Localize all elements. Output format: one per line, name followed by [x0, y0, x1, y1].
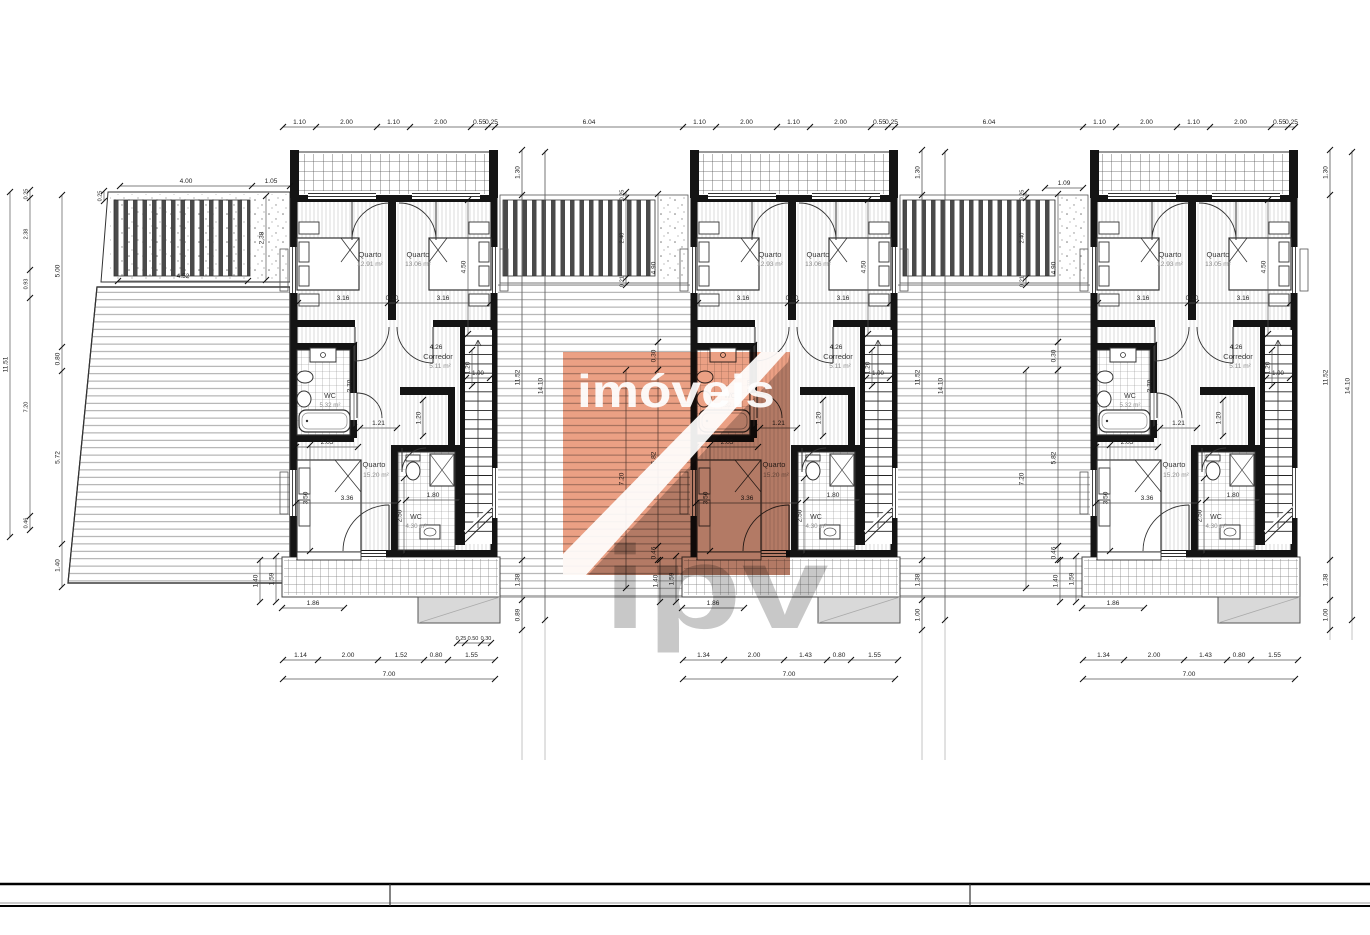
svg-text:1.59: 1.59 — [269, 572, 276, 585]
svg-text:1.86: 1.86 — [307, 600, 320, 607]
svg-text:1.38: 1.38 — [1323, 573, 1330, 586]
svg-text:2.05: 2.05 — [1121, 439, 1134, 446]
svg-text:1.10: 1.10 — [387, 119, 400, 126]
svg-text:2.50: 2.50 — [1197, 509, 1204, 522]
svg-text:1.10: 1.10 — [693, 119, 706, 126]
svg-text:1.00: 1.00 — [872, 371, 884, 377]
svg-text:Quarto: Quarto — [359, 250, 382, 259]
svg-text:0.50: 0.50 — [468, 636, 479, 642]
svg-text:2.38: 2.38 — [259, 231, 266, 244]
svg-text:Quarto: Quarto — [1159, 250, 1182, 259]
svg-text:0.25: 0.25 — [1285, 119, 1298, 126]
svg-text:4.26: 4.26 — [430, 344, 443, 351]
gap-strip-2 — [894, 195, 1094, 597]
svg-text:2.50: 2.50 — [397, 509, 404, 522]
svg-text:4.90: 4.90 — [1051, 261, 1058, 274]
svg-text:0.25: 0.25 — [24, 189, 30, 200]
svg-text:1.10: 1.10 — [1093, 119, 1106, 126]
svg-text:14.10: 14.10 — [538, 377, 545, 394]
svg-text:15.20 m²: 15.20 m² — [1163, 472, 1189, 479]
svg-text:1.30: 1.30 — [515, 166, 522, 179]
svg-text:0.10: 0.10 — [786, 295, 799, 302]
svg-text:4.30 m²: 4.30 m² — [406, 523, 427, 530]
svg-text:3.16: 3.16 — [337, 295, 350, 302]
svg-text:1.20: 1.20 — [816, 411, 823, 424]
svg-text:1.00: 1.00 — [472, 371, 484, 377]
svg-text:2.00: 2.00 — [740, 119, 753, 126]
svg-text:2.00: 2.00 — [834, 119, 847, 126]
svg-text:14.10: 14.10 — [938, 377, 945, 394]
svg-text:2.70: 2.70 — [347, 379, 354, 392]
svg-text:7.00: 7.00 — [1183, 671, 1196, 678]
svg-text:11.52: 11.52 — [515, 369, 522, 385]
unit-3: Quarto12.93 m²Quarto13.05 m²4.26Corredor… — [1080, 150, 1308, 623]
svg-text:1.55: 1.55 — [1268, 652, 1281, 659]
svg-text:0.30: 0.30 — [481, 636, 492, 642]
svg-text:13.06 m²: 13.06 m² — [805, 261, 831, 268]
watermark-logo: imóveisipv — [563, 352, 829, 654]
svg-text:3.36: 3.36 — [1141, 495, 1154, 502]
svg-text:2.00: 2.00 — [434, 119, 447, 126]
svg-text:3.16: 3.16 — [837, 295, 850, 302]
svg-text:Corredor: Corredor — [823, 352, 853, 361]
svg-text:11.52: 11.52 — [1323, 369, 1330, 385]
svg-text:0.10: 0.10 — [386, 295, 399, 302]
svg-text:2.00: 2.00 — [342, 652, 355, 659]
svg-text:3.36: 3.36 — [341, 495, 354, 502]
svg-text:1.55: 1.55 — [868, 652, 881, 659]
svg-text:1.10: 1.10 — [293, 119, 306, 126]
svg-text:1.09: 1.09 — [1058, 180, 1071, 187]
svg-text:imóveis: imóveis — [577, 365, 775, 417]
svg-text:Quarto: Quarto — [363, 460, 386, 469]
svg-text:1.40: 1.40 — [253, 574, 260, 587]
svg-text:11.51: 11.51 — [3, 356, 10, 372]
svg-text:3.50: 3.50 — [1103, 491, 1110, 504]
svg-text:0.25: 0.25 — [456, 636, 467, 642]
svg-text:2.05: 2.05 — [321, 439, 334, 446]
svg-text:12.93 m²: 12.93 m² — [1157, 261, 1183, 268]
svg-text:2.00: 2.00 — [1234, 119, 1247, 126]
svg-text:12.93 m²: 12.93 m² — [757, 261, 783, 268]
svg-text:WC: WC — [1210, 514, 1222, 521]
svg-text:1.52: 1.52 — [395, 652, 408, 659]
svg-text:2.50: 2.50 — [797, 509, 804, 522]
svg-text:1.80: 1.80 — [827, 492, 840, 499]
svg-text:5.32 m²: 5.32 m² — [320, 402, 341, 409]
svg-text:0.46: 0.46 — [1051, 546, 1058, 559]
svg-text:13.06 m²: 13.06 m² — [405, 261, 431, 268]
svg-text:0.93: 0.93 — [24, 279, 30, 290]
svg-text:3.16: 3.16 — [1137, 295, 1150, 302]
svg-text:7.00: 7.00 — [383, 671, 396, 678]
svg-text:11.52: 11.52 — [915, 369, 922, 385]
svg-text:0.80: 0.80 — [1233, 652, 1246, 659]
svg-text:5.82: 5.82 — [1051, 451, 1058, 464]
svg-text:Quarto: Quarto — [759, 250, 782, 259]
svg-text:0.25: 0.25 — [485, 119, 498, 126]
svg-text:0.80: 0.80 — [430, 652, 443, 659]
svg-text:5.72: 5.72 — [55, 451, 62, 464]
svg-text:1.21: 1.21 — [372, 420, 385, 427]
svg-text:5.00: 5.00 — [55, 264, 62, 277]
svg-text:1.10: 1.10 — [1187, 119, 1200, 126]
svg-text:1.00: 1.00 — [1272, 371, 1284, 377]
svg-text:4.30 m²: 4.30 m² — [1206, 523, 1227, 530]
svg-text:1.55: 1.55 — [465, 652, 478, 659]
svg-text:Quarto: Quarto — [807, 250, 830, 259]
svg-text:12.91 m²: 12.91 m² — [357, 261, 383, 268]
svg-text:0.80: 0.80 — [55, 352, 62, 365]
svg-text:WC: WC — [410, 514, 422, 521]
svg-text:WC: WC — [1124, 393, 1136, 400]
svg-text:5.32 m²: 5.32 m² — [1120, 402, 1141, 409]
svg-text:5.11 m²: 5.11 m² — [429, 363, 451, 370]
svg-text:1.80: 1.80 — [1227, 492, 1240, 499]
svg-text:5.11 m²: 5.11 m² — [829, 363, 851, 370]
svg-text:2.00: 2.00 — [1140, 119, 1153, 126]
svg-text:2.00: 2.00 — [340, 119, 353, 126]
svg-text:1.10: 1.10 — [787, 119, 800, 126]
svg-text:1.80: 1.80 — [427, 492, 440, 499]
svg-text:1.30: 1.30 — [915, 166, 922, 179]
svg-text:0.25: 0.25 — [98, 191, 104, 202]
svg-text:1.00: 1.00 — [915, 608, 922, 621]
svg-text:7.20: 7.20 — [1019, 472, 1026, 485]
svg-text:ipv: ipv — [604, 522, 829, 654]
svg-text:1.86: 1.86 — [1107, 600, 1120, 607]
left-terrace — [68, 192, 290, 583]
svg-text:4.50: 4.50 — [861, 260, 868, 273]
svg-text:1.20: 1.20 — [416, 411, 423, 424]
svg-text:Quarto: Quarto — [1163, 460, 1186, 469]
svg-text:4.50: 4.50 — [461, 260, 468, 273]
svg-text:2.70: 2.70 — [1147, 379, 1154, 392]
svg-text:1.21: 1.21 — [1172, 420, 1185, 427]
svg-text:1.59: 1.59 — [1069, 572, 1076, 585]
svg-text:15.20 m²: 15.20 m² — [363, 472, 389, 479]
svg-text:Quarto: Quarto — [1207, 250, 1230, 259]
svg-text:4.52: 4.52 — [177, 273, 190, 280]
svg-text:0.46: 0.46 — [24, 518, 30, 529]
svg-text:2.38: 2.38 — [24, 229, 30, 240]
svg-text:4.00: 4.00 — [180, 178, 193, 185]
svg-text:1.20: 1.20 — [1265, 361, 1272, 374]
svg-text:14.10: 14.10 — [1345, 377, 1352, 394]
svg-text:0.89: 0.89 — [515, 608, 522, 621]
svg-text:5.11 m²: 5.11 m² — [1229, 363, 1251, 370]
svg-text:2.40: 2.40 — [1020, 233, 1026, 244]
svg-text:0.21: 0.21 — [1020, 276, 1026, 287]
svg-text:2.00: 2.00 — [1148, 652, 1161, 659]
svg-text:1.30: 1.30 — [1323, 166, 1330, 179]
svg-text:1.20: 1.20 — [865, 361, 872, 374]
svg-text:4.90: 4.90 — [651, 261, 658, 274]
svg-text:1.20: 1.20 — [1216, 411, 1223, 424]
svg-text:1.20: 1.20 — [465, 361, 472, 374]
svg-text:1.14: 1.14 — [294, 652, 307, 659]
title-block — [0, 884, 1370, 906]
svg-text:Quarto: Quarto — [407, 250, 430, 259]
svg-text:Corredor: Corredor — [423, 352, 453, 361]
svg-text:4.50: 4.50 — [1261, 260, 1268, 273]
svg-text:6.04: 6.04 — [983, 119, 996, 126]
svg-text:1.40: 1.40 — [1053, 574, 1060, 587]
svg-text:1.43: 1.43 — [1199, 652, 1212, 659]
svg-text:4.26: 4.26 — [1230, 344, 1243, 351]
svg-text:3.16: 3.16 — [437, 295, 450, 302]
svg-text:2.40: 2.40 — [620, 233, 626, 244]
svg-text:0.25: 0.25 — [885, 119, 898, 126]
svg-text:1.05: 1.05 — [265, 178, 278, 185]
svg-text:0.30: 0.30 — [1051, 349, 1058, 362]
svg-text:7.20: 7.20 — [24, 402, 30, 413]
svg-text:1.34: 1.34 — [1097, 652, 1110, 659]
svg-text:3.16: 3.16 — [1237, 295, 1250, 302]
floor-plan-sheet: Quarto12.91 m²Quarto13.06 m²4.26Corredor… — [0, 0, 1370, 935]
svg-text:7.00: 7.00 — [783, 671, 796, 678]
svg-text:13.05 m²: 13.05 m² — [1205, 261, 1231, 268]
svg-text:Corredor: Corredor — [1223, 352, 1253, 361]
svg-text:0.10: 0.10 — [1186, 295, 1199, 302]
svg-text:1.38: 1.38 — [515, 573, 522, 586]
svg-text:1.00: 1.00 — [1323, 608, 1330, 621]
unit-1: Quarto12.91 m²Quarto13.06 m²4.26Corredor… — [280, 150, 508, 623]
svg-text:4.26: 4.26 — [830, 344, 843, 351]
svg-text:WC: WC — [324, 393, 336, 400]
svg-text:3.16: 3.16 — [737, 295, 750, 302]
svg-text:0.21: 0.21 — [620, 276, 626, 287]
svg-text:3.50: 3.50 — [303, 491, 310, 504]
svg-text:1.40: 1.40 — [55, 559, 62, 572]
svg-text:1.38: 1.38 — [915, 573, 922, 586]
svg-text:6.04: 6.04 — [583, 119, 596, 126]
floor-plan-canvas: Quarto12.91 m²Quarto13.06 m²4.26Corredor… — [0, 0, 1370, 935]
svg-text:WC: WC — [810, 514, 822, 521]
svg-text:0.80: 0.80 — [833, 652, 846, 659]
